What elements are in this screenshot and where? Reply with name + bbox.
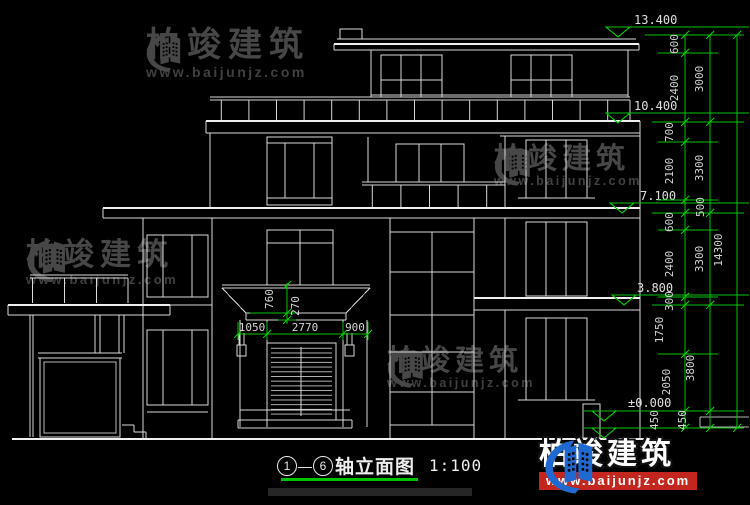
- roof-terrace-railing: [210, 97, 630, 121]
- elevation-linework: 13.400 10.400 7.100 3.800 ±0.000 -0.450: [0, 0, 750, 505]
- level-label: ±0.000: [628, 396, 671, 410]
- cad-elevation-drawing: 柏竣建筑 www.baijunjz.com 柏竣建筑 www.baijunjz.…: [0, 0, 750, 505]
- brand-logo-icon: [535, 432, 607, 502]
- top-floor-windows: [371, 50, 628, 97]
- porch-railing: [30, 278, 128, 303]
- drawing-title-label: 轴立面图: [335, 452, 415, 479]
- balcony-railing: [362, 185, 505, 208]
- dim-value: 3300: [693, 155, 706, 182]
- entrance-dimensions: 760 270 1050 2770 900: [234, 281, 372, 340]
- entry-steps: [122, 425, 146, 439]
- roof-slab-13400: [334, 29, 639, 50]
- level-label: 13.400: [634, 13, 677, 27]
- window: [396, 144, 464, 182]
- dimension-chains: 600 2400 700 2100 500 600 2400 300 1750 …: [645, 31, 744, 432]
- garage-door: [40, 358, 120, 437]
- roof-chimney: [340, 29, 362, 39]
- window: [526, 318, 587, 400]
- axis-start-bubble: 1: [277, 456, 297, 476]
- dim-value: 3000: [693, 66, 706, 93]
- dim-value: 2100: [663, 158, 676, 185]
- floor-slab-7100: [103, 208, 640, 218]
- dim-value: 500: [694, 197, 707, 217]
- entrance-step: [238, 420, 352, 428]
- brand-logo: 柏竣建筑 www.baijunjz.com: [535, 432, 697, 490]
- dim-value: 450: [648, 410, 661, 430]
- left-window-bay: [143, 218, 212, 439]
- dim-value: 700: [663, 122, 676, 142]
- dim-value: 3300: [693, 246, 706, 273]
- porch-and-garage: [8, 275, 170, 439]
- entrance-lamp: [345, 333, 354, 356]
- dim-value: 2400: [663, 251, 676, 278]
- dim-value: 1050: [239, 321, 266, 334]
- dim-value: 270: [289, 296, 302, 316]
- dim-value: 450: [676, 410, 689, 430]
- dim-value: 600: [663, 212, 676, 232]
- level-triangle-icon: [612, 295, 636, 305]
- drawing-scale: 1:100: [429, 456, 482, 475]
- stair-window-grid: [390, 218, 474, 439]
- dim-value: 2400: [668, 75, 681, 102]
- title-underline: [281, 478, 418, 481]
- level-label: 7.100: [640, 189, 676, 203]
- level-triangle-icon: [606, 27, 630, 37]
- drawing-title: 1 — 6 轴立面图 1:100: [277, 452, 482, 479]
- right-tower: [474, 218, 640, 439]
- dim-value: 2050: [660, 369, 673, 396]
- window: [526, 140, 587, 198]
- dim-value: 900: [345, 321, 365, 334]
- dim-value-total: 14300: [712, 233, 725, 266]
- dim-value: 1750: [653, 317, 666, 344]
- axis-range-dash: —: [298, 458, 312, 474]
- dim-value: 300: [663, 291, 676, 311]
- window: [267, 137, 332, 205]
- dim-value: 2770: [292, 321, 319, 334]
- window: [526, 222, 587, 296]
- dim-value: 600: [668, 34, 681, 54]
- axis-end-bubble: 6: [313, 456, 333, 476]
- dim-value: 760: [263, 289, 276, 309]
- dim-value: 3800: [684, 355, 697, 382]
- site-wall-fragment: [700, 417, 749, 427]
- level-triangle-icon: [592, 411, 616, 421]
- floor-slab-10400: [206, 121, 640, 136]
